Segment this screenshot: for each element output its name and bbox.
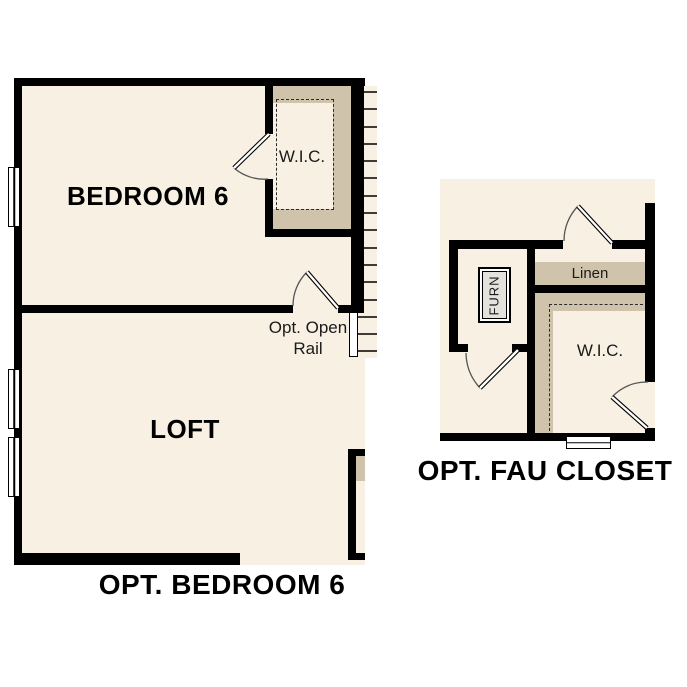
wall-segment — [351, 86, 364, 312]
linen-label: Linen — [572, 265, 609, 282]
wic-label: W.I.C. — [560, 341, 640, 361]
wall-segment — [449, 240, 535, 249]
wall-segment — [612, 240, 645, 249]
furnace-label: FURN — [487, 275, 502, 315]
wall-segment — [449, 240, 458, 352]
floorplan-canvas: BEDROOM 6 LOFT W.I.C. Opt. Open Rail OPT… — [0, 0, 687, 687]
stair-strip-floor — [364, 86, 377, 358]
wall-segment — [265, 86, 273, 134]
caption-opt-fau-closet: OPT. FAU CLOSET — [409, 455, 681, 487]
furnace-unit: FURN — [478, 267, 511, 323]
window-symbol — [566, 436, 611, 449]
wall-segment — [348, 449, 356, 560]
wall-segment — [14, 78, 365, 86]
wall-segment — [535, 240, 563, 249]
room-loft-label: LOFT — [120, 414, 250, 445]
wall-segment — [449, 344, 468, 352]
linen-shelf: Linen — [535, 262, 645, 285]
wall-segment — [265, 229, 364, 237]
furnace-unit-inner: FURN — [482, 271, 507, 319]
wall-segment — [535, 285, 655, 293]
wall-segment — [348, 553, 365, 560]
open-rail-note: Opt. Open Rail — [258, 317, 358, 359]
wall-segment — [527, 240, 535, 441]
wall-segment — [22, 305, 293, 313]
wic-shelf-dashed-line — [549, 304, 643, 431]
wall-segment — [440, 433, 655, 441]
window-symbol — [8, 369, 20, 429]
stairwell-poche — [356, 456, 365, 481]
caption-opt-bedroom6: OPT. BEDROOM 6 — [90, 569, 354, 601]
room-bedroom6-label: BEDROOM 6 — [58, 181, 238, 212]
wall-segment — [348, 449, 365, 456]
window-symbol — [8, 437, 20, 497]
window-symbol — [8, 167, 20, 227]
wall-segment — [14, 553, 240, 565]
wic-label: W.I.C. — [266, 147, 338, 167]
